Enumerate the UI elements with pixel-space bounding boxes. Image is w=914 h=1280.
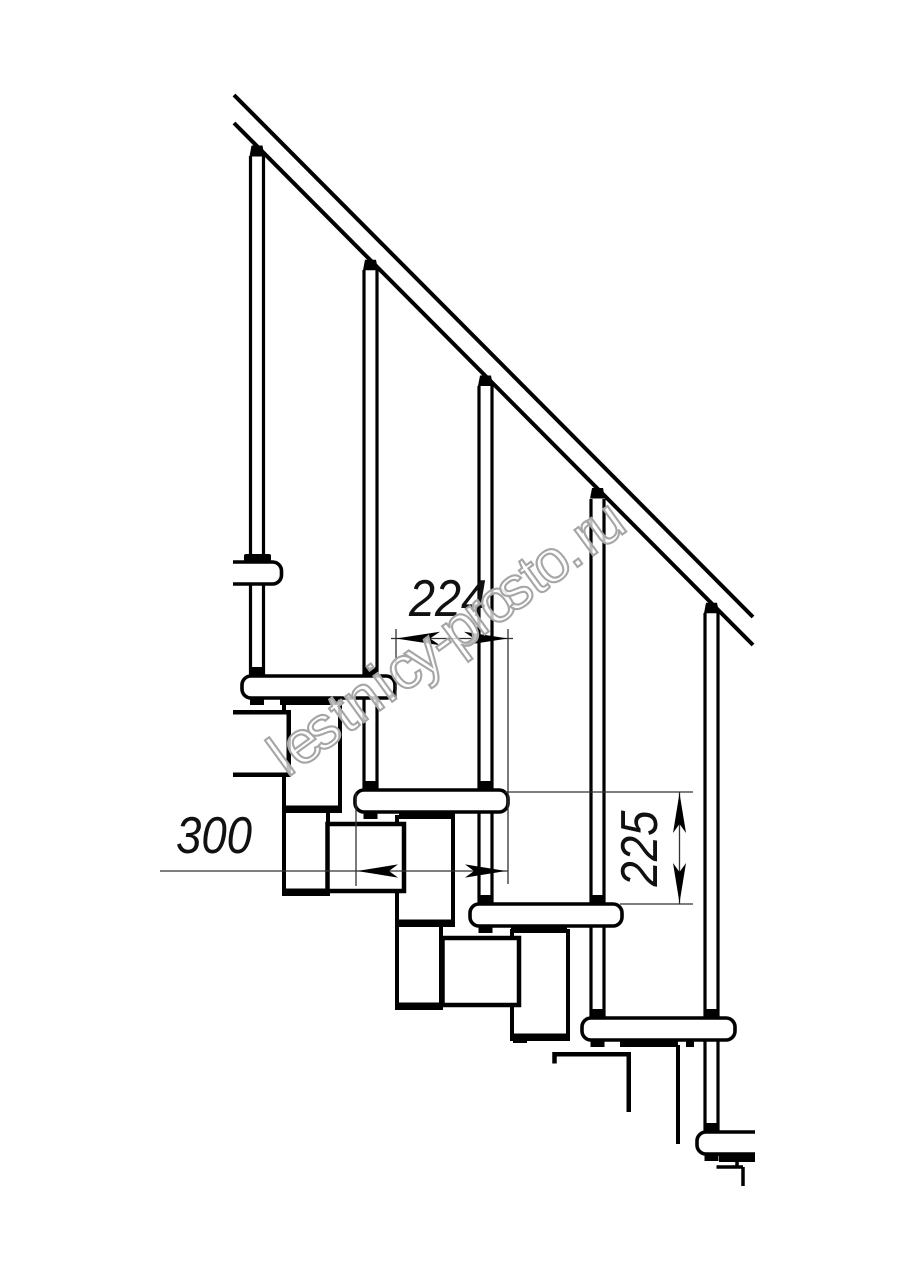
svg-text:225: 225 — [611, 810, 669, 888]
svg-text:300: 300 — [176, 807, 252, 865]
